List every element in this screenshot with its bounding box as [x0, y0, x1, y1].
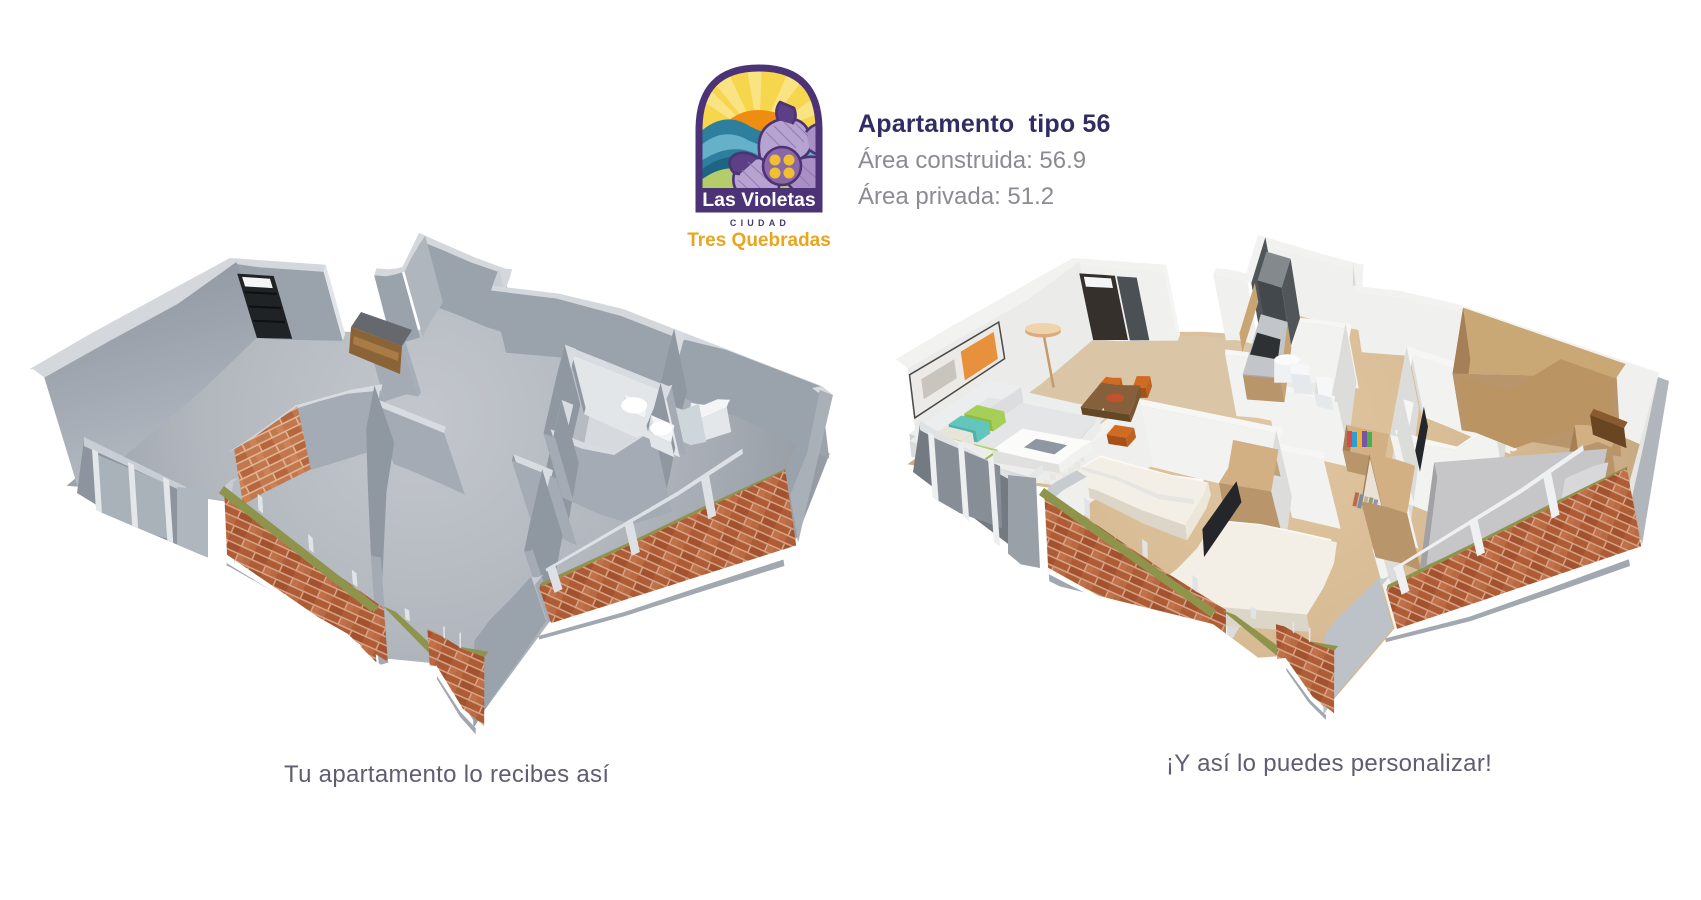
svg-text:Tres Quebradas: Tres Quebradas [687, 230, 831, 251]
svg-text:Las Violetas: Las Violetas [702, 189, 816, 211]
svg-text:CIUDAD: CIUDAD [730, 218, 790, 228]
